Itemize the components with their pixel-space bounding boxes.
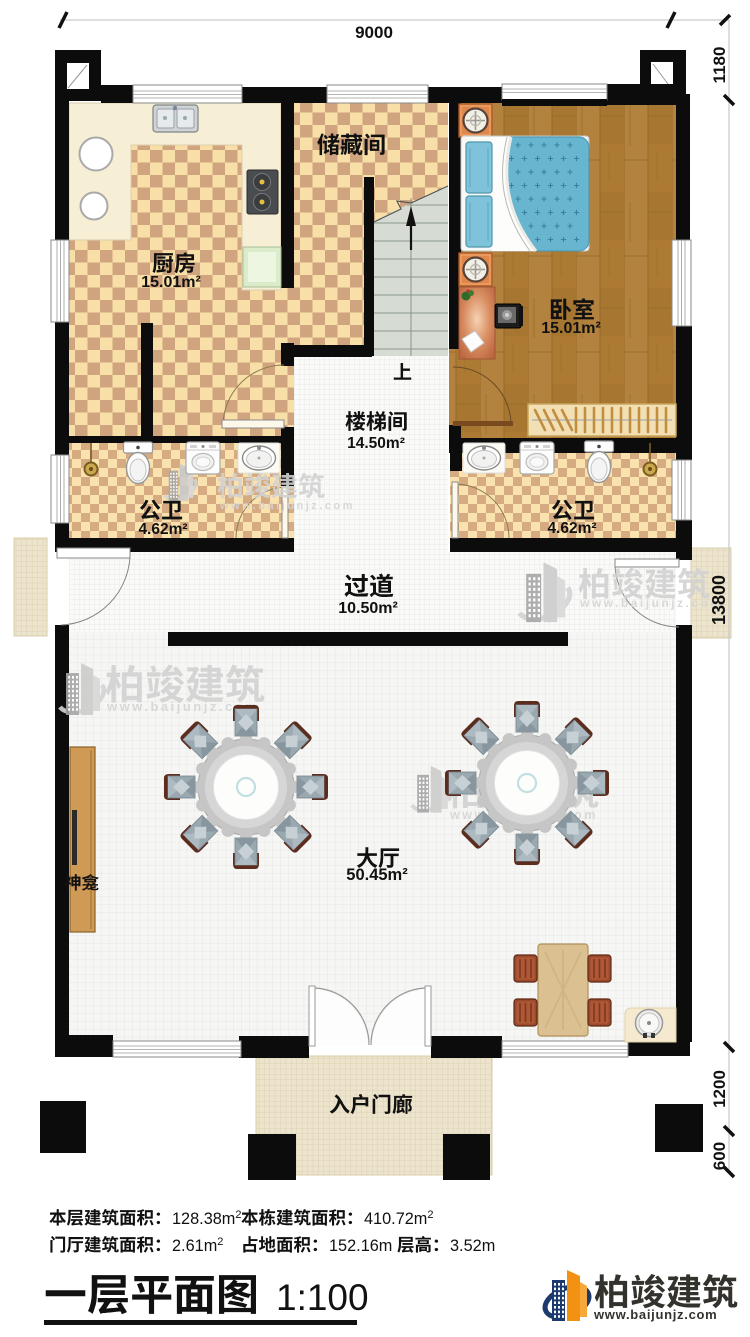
svg-text:9000: 9000	[355, 23, 393, 42]
svg-text:13800: 13800	[709, 575, 729, 625]
svg-text:4.62m²: 4.62m²	[138, 521, 187, 538]
svg-text:14.50m²: 14.50m²	[347, 435, 405, 452]
svg-text:www.baijunjz.com: www.baijunjz.com	[579, 596, 724, 610]
svg-text:2.61m2: 2.61m2	[172, 1236, 223, 1255]
svg-text:15.01m²: 15.01m²	[541, 320, 601, 337]
svg-text:www.baijunjz.com: www.baijunjz.com	[219, 500, 355, 512]
svg-text:152.16m: 152.16m	[329, 1237, 392, 1255]
svg-text:410.72m2: 410.72m2	[364, 1209, 434, 1228]
svg-text:1200: 1200	[710, 1070, 729, 1108]
svg-text:4.62m²: 4.62m²	[547, 520, 596, 537]
svg-text:15.01m²: 15.01m²	[141, 274, 201, 291]
svg-text:www.baijunjz.com: www.baijunjz.com	[593, 1307, 717, 1322]
svg-text:600: 600	[710, 1142, 729, 1170]
svg-text:10.50m²: 10.50m²	[338, 600, 398, 617]
svg-text:1:100: 1:100	[276, 1277, 369, 1318]
svg-text:3.52m: 3.52m	[450, 1237, 495, 1255]
svg-text:50.45m²: 50.45m²	[346, 866, 408, 884]
svg-text:1180: 1180	[710, 47, 729, 84]
svg-text:128.38m2: 128.38m2	[172, 1209, 242, 1228]
